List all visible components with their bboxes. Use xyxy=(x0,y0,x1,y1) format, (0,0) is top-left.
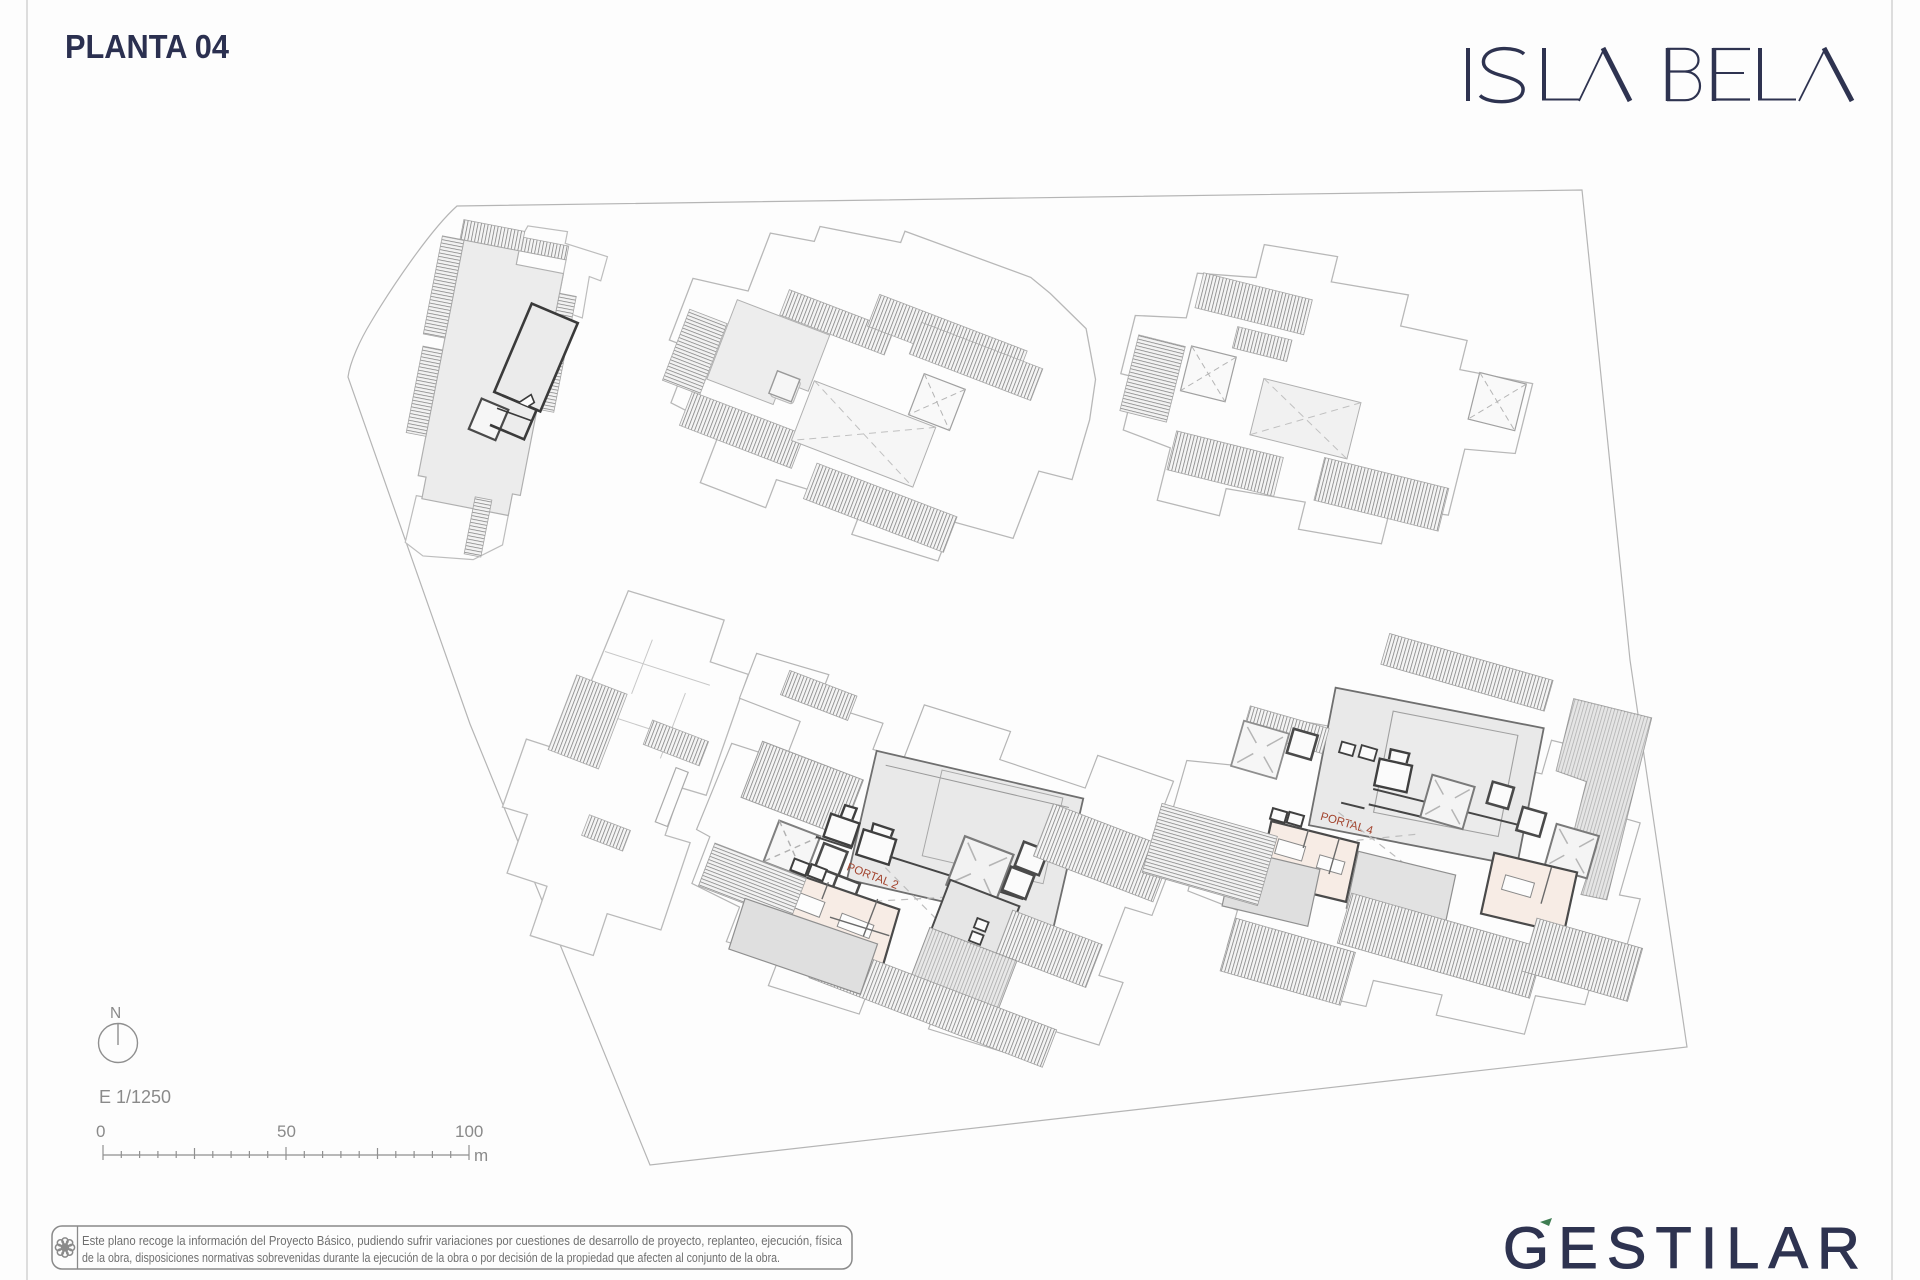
svg-text:GESTILAR: GESTILAR xyxy=(1503,1216,1869,1280)
svg-text:de la obra, disposiciones norm: de la obra, disposiciones normativas sob… xyxy=(82,1250,780,1265)
svg-text:100: 100 xyxy=(455,1122,483,1141)
svg-text:PLANTA 04: PLANTA 04 xyxy=(65,28,230,65)
svg-text:E 1/1250: E 1/1250 xyxy=(99,1087,171,1107)
svg-text:m: m xyxy=(474,1146,488,1165)
svg-text:Este plano recoge la informaci: Este plano recoge la información del Pro… xyxy=(82,1233,843,1248)
svg-text:0: 0 xyxy=(96,1122,105,1141)
svg-text:N: N xyxy=(110,1005,121,1022)
svg-text:50: 50 xyxy=(277,1122,296,1141)
